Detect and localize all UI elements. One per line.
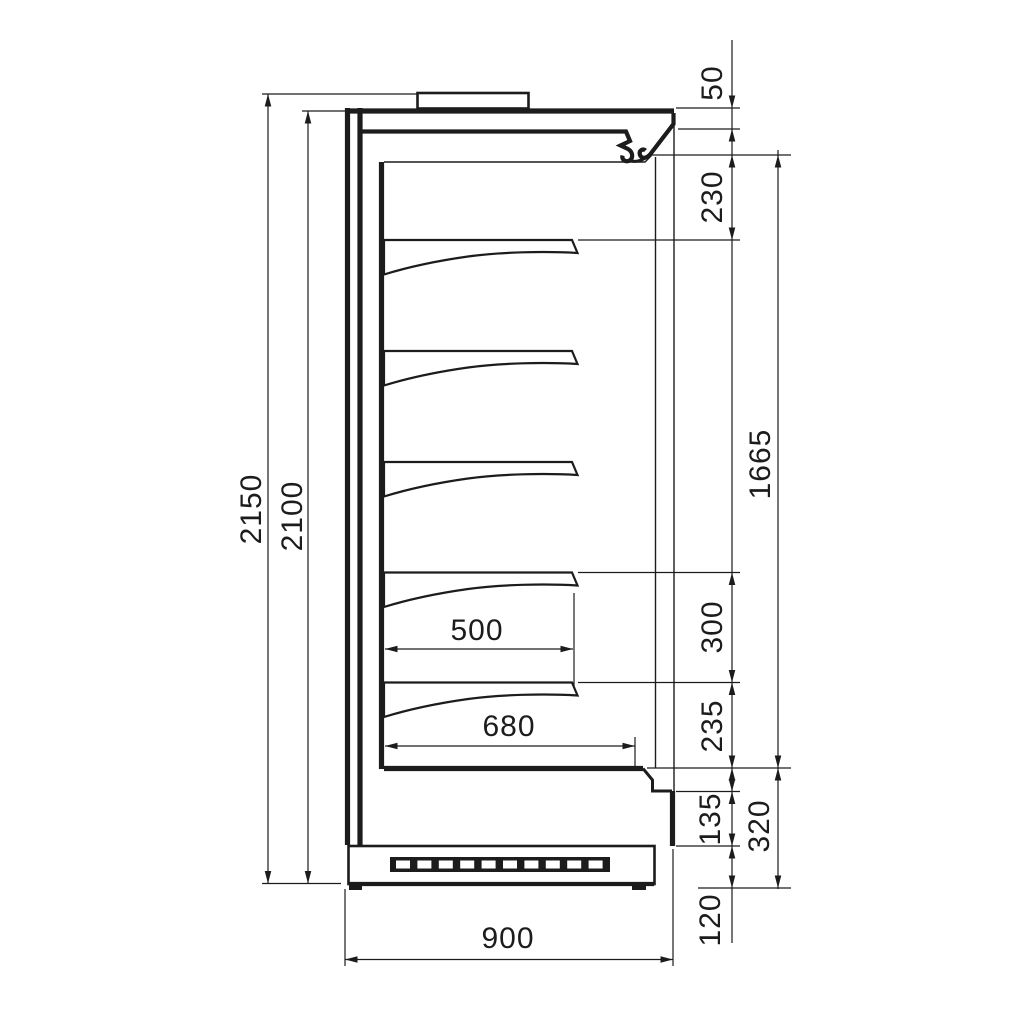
ventilation-grille: [390, 857, 610, 872]
cabinet-section-linework: [0, 0, 1024, 1024]
dim-display-opening: 1665: [746, 399, 776, 529]
dim-body-height: 2100: [278, 451, 308, 581]
dim-canopy-front-lip: 50: [698, 18, 728, 148]
dim-base-well-depth: 680: [444, 712, 574, 742]
shelf-1: [384, 240, 578, 275]
foot-right: [632, 884, 646, 890]
foot-left: [349, 884, 362, 890]
top-vent-box: [418, 93, 529, 109]
dim-overall-height: 2150: [237, 444, 267, 574]
technical-drawing-page: 2150 2100 50 230 1665 300 235 135 320 12…: [0, 0, 1024, 1024]
dim-plinth-height: 120: [696, 855, 726, 985]
shelf-2: [384, 351, 578, 386]
dim-shelf-depth: 500: [412, 616, 542, 646]
dim-base-section-height: 320: [745, 761, 775, 891]
bottom-front-step: [643, 769, 672, 792]
canopy-inner-line: [358, 132, 632, 162]
cabinet-body: [345, 93, 674, 890]
shelf-4: [384, 573, 578, 608]
canopy-right-edge: [640, 113, 674, 158]
dim-top-clearance: 230: [698, 132, 728, 262]
shelf-3: [384, 462, 578, 497]
dim-overall-depth: 900: [443, 924, 573, 954]
canopy-ceiling-line: [384, 156, 652, 163]
